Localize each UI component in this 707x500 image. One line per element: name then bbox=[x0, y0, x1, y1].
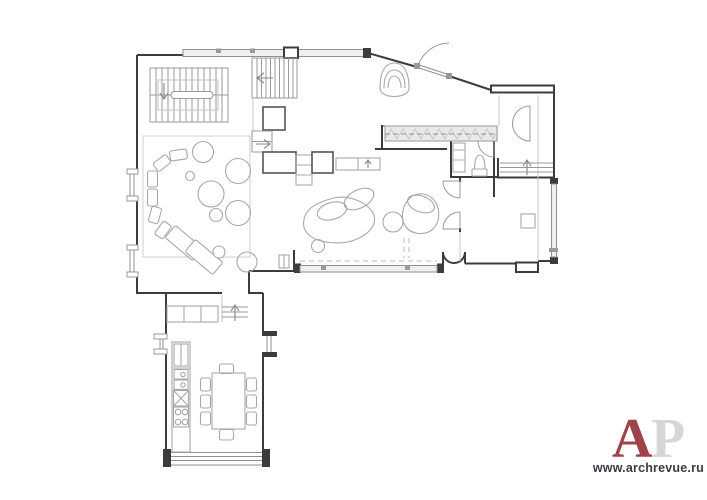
tub-armchair bbox=[380, 63, 409, 97]
organic-lounge-chair-left bbox=[304, 184, 378, 243]
central-lounge bbox=[263, 63, 439, 253]
watermark: A P www.archrevue.ru bbox=[592, 408, 704, 475]
watermark-url: www.archrevue.ru bbox=[592, 461, 704, 475]
window-cap bbox=[550, 257, 558, 264]
window-cap bbox=[363, 48, 371, 58]
tv-cabinet bbox=[312, 152, 333, 173]
door-swing-arc bbox=[418, 43, 449, 66]
shaft-and-duct bbox=[252, 107, 285, 152]
south-window-band bbox=[300, 266, 437, 273]
dining-chair bbox=[201, 378, 211, 391]
top-window-band bbox=[183, 50, 368, 57]
window-cap bbox=[437, 264, 444, 274]
dining-chair bbox=[247, 378, 257, 391]
tv-cabinet bbox=[263, 152, 296, 173]
kitchen-sink bbox=[174, 370, 188, 390]
stair-direction-arrow bbox=[160, 83, 168, 99]
stair-handrail bbox=[171, 92, 213, 99]
dining-chair bbox=[201, 395, 211, 408]
dining-chair bbox=[220, 430, 234, 441]
top-right-wall bbox=[491, 86, 554, 93]
dining-set bbox=[201, 364, 257, 440]
column bbox=[521, 214, 535, 228]
dishwasher bbox=[174, 391, 189, 407]
west-window bbox=[127, 169, 138, 201]
main-staircase bbox=[150, 68, 228, 122]
kitchen-upper-cabinets bbox=[167, 306, 218, 322]
west-window bbox=[127, 245, 138, 277]
radiator bbox=[279, 255, 289, 268]
dining-chair bbox=[220, 364, 234, 374]
dining-chair bbox=[201, 412, 211, 425]
built-in-wardrobe bbox=[385, 126, 497, 141]
window-cap bbox=[262, 449, 270, 467]
door-leaf bbox=[419, 65, 450, 78]
window-cap bbox=[163, 449, 171, 467]
entrance-door bbox=[414, 43, 452, 79]
cabinet-row bbox=[263, 152, 380, 185]
dining-chair bbox=[247, 412, 257, 425]
organic-lounge-chair-right bbox=[402, 192, 438, 234]
exterior-step bbox=[516, 263, 538, 273]
side-table bbox=[383, 212, 403, 232]
stove-burners bbox=[174, 407, 189, 427]
kitchen-west-window bbox=[154, 334, 167, 354]
lift-shaft bbox=[263, 107, 285, 130]
window-cap bbox=[550, 178, 558, 184]
double-swing-door bbox=[443, 181, 460, 229]
curved-sofa bbox=[148, 149, 226, 275]
dining-table bbox=[212, 373, 245, 429]
curtain-line bbox=[404, 238, 409, 258]
toilet bbox=[472, 155, 487, 176]
kitchen-counter bbox=[172, 342, 190, 452]
kitchen-south-window bbox=[171, 453, 262, 466]
pouf bbox=[312, 240, 325, 253]
floor-plan-drawing: A P www.archrevue.ru bbox=[0, 0, 707, 500]
kitchen bbox=[167, 306, 257, 452]
dining-chair bbox=[247, 395, 257, 408]
rug bbox=[143, 136, 250, 257]
east-window-band bbox=[552, 184, 557, 257]
curved-entry-element bbox=[513, 106, 531, 141]
floor-plan-page: A P www.archrevue.ru bbox=[0, 0, 707, 500]
window-pillar bbox=[284, 48, 298, 59]
sofa-end-table bbox=[213, 246, 225, 258]
kitchen-steps bbox=[222, 305, 248, 321]
bathroom bbox=[453, 141, 494, 176]
bathroom-cabinet bbox=[453, 143, 465, 172]
kitchen-east-window bbox=[262, 331, 277, 357]
entry-steps bbox=[500, 160, 553, 175]
